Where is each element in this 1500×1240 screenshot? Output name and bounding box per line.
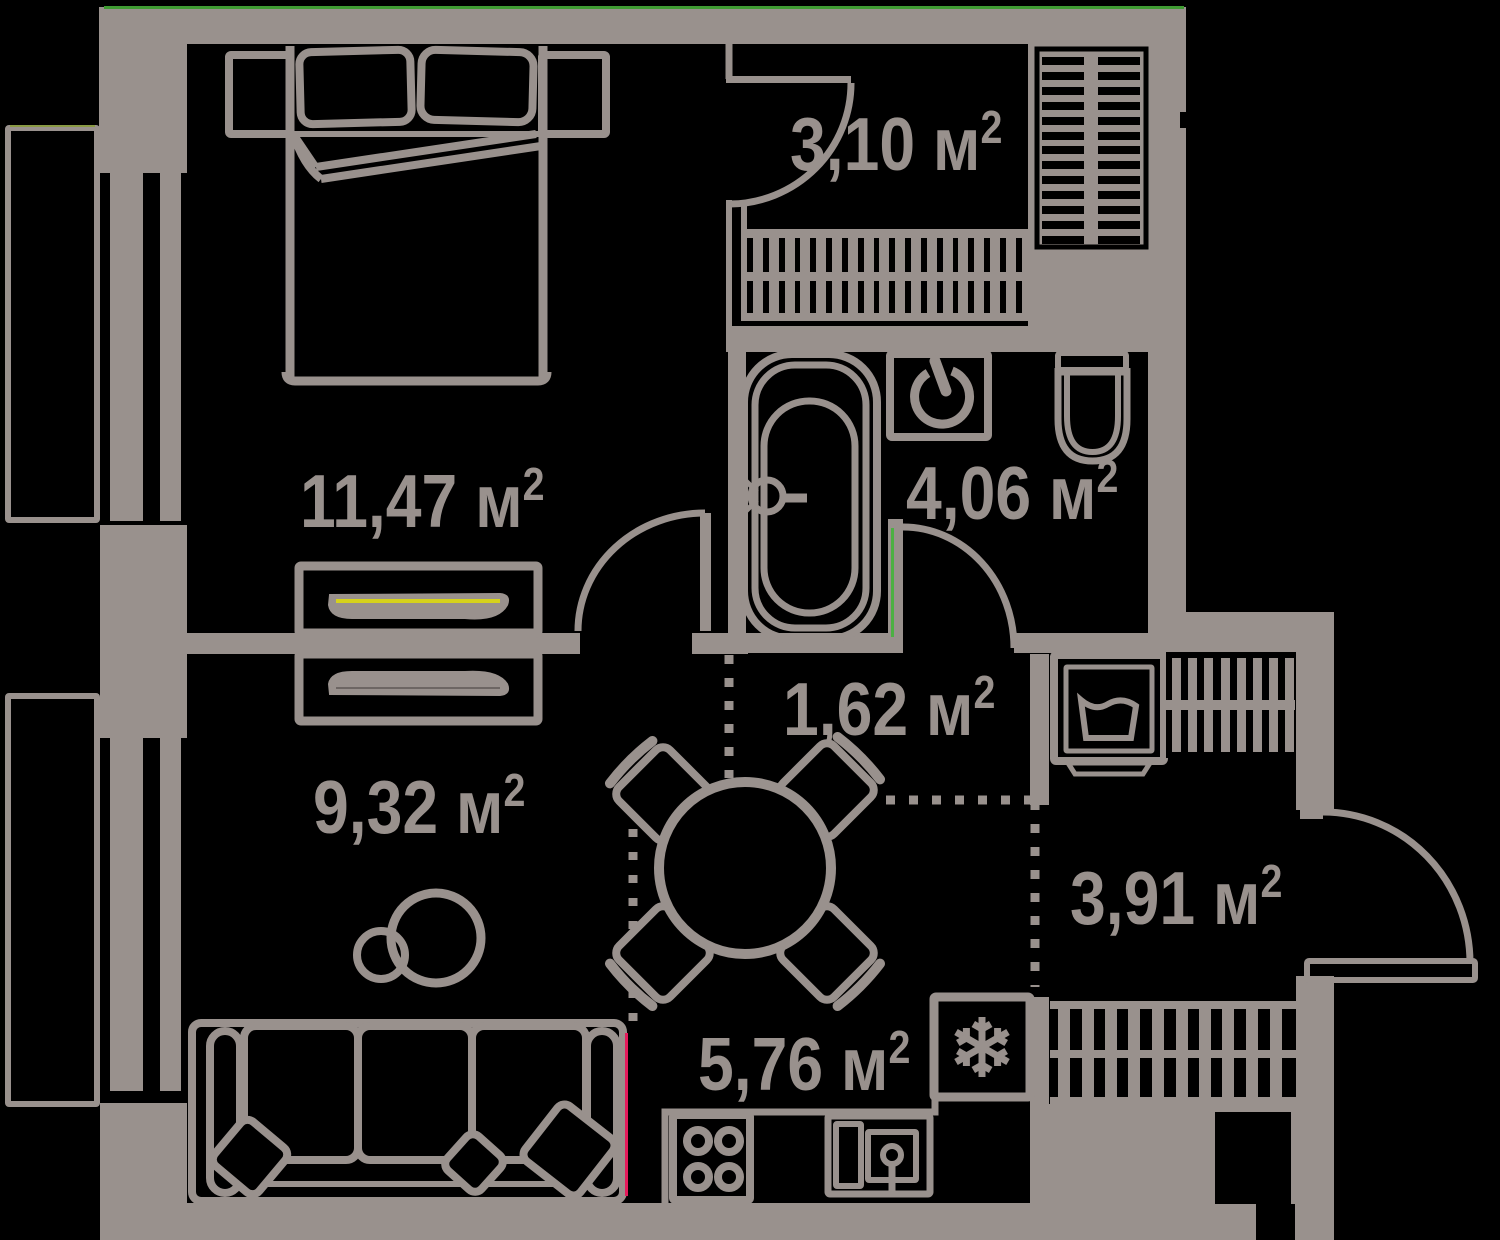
svg-text:3,10 м2: 3,10 м2 <box>790 102 1002 186</box>
svg-text:1,62 м2: 1,62 м2 <box>783 667 995 751</box>
svg-text:5,76 м2: 5,76 м2 <box>698 1022 910 1106</box>
svg-text:9,32 м2: 9,32 м2 <box>313 765 525 849</box>
svg-text:3,91 м2: 3,91 м2 <box>1070 856 1282 940</box>
svg-text:11,47 м2: 11,47 м2 <box>300 459 545 543</box>
svg-text:4,06 м2: 4,06 м2 <box>906 451 1118 535</box>
